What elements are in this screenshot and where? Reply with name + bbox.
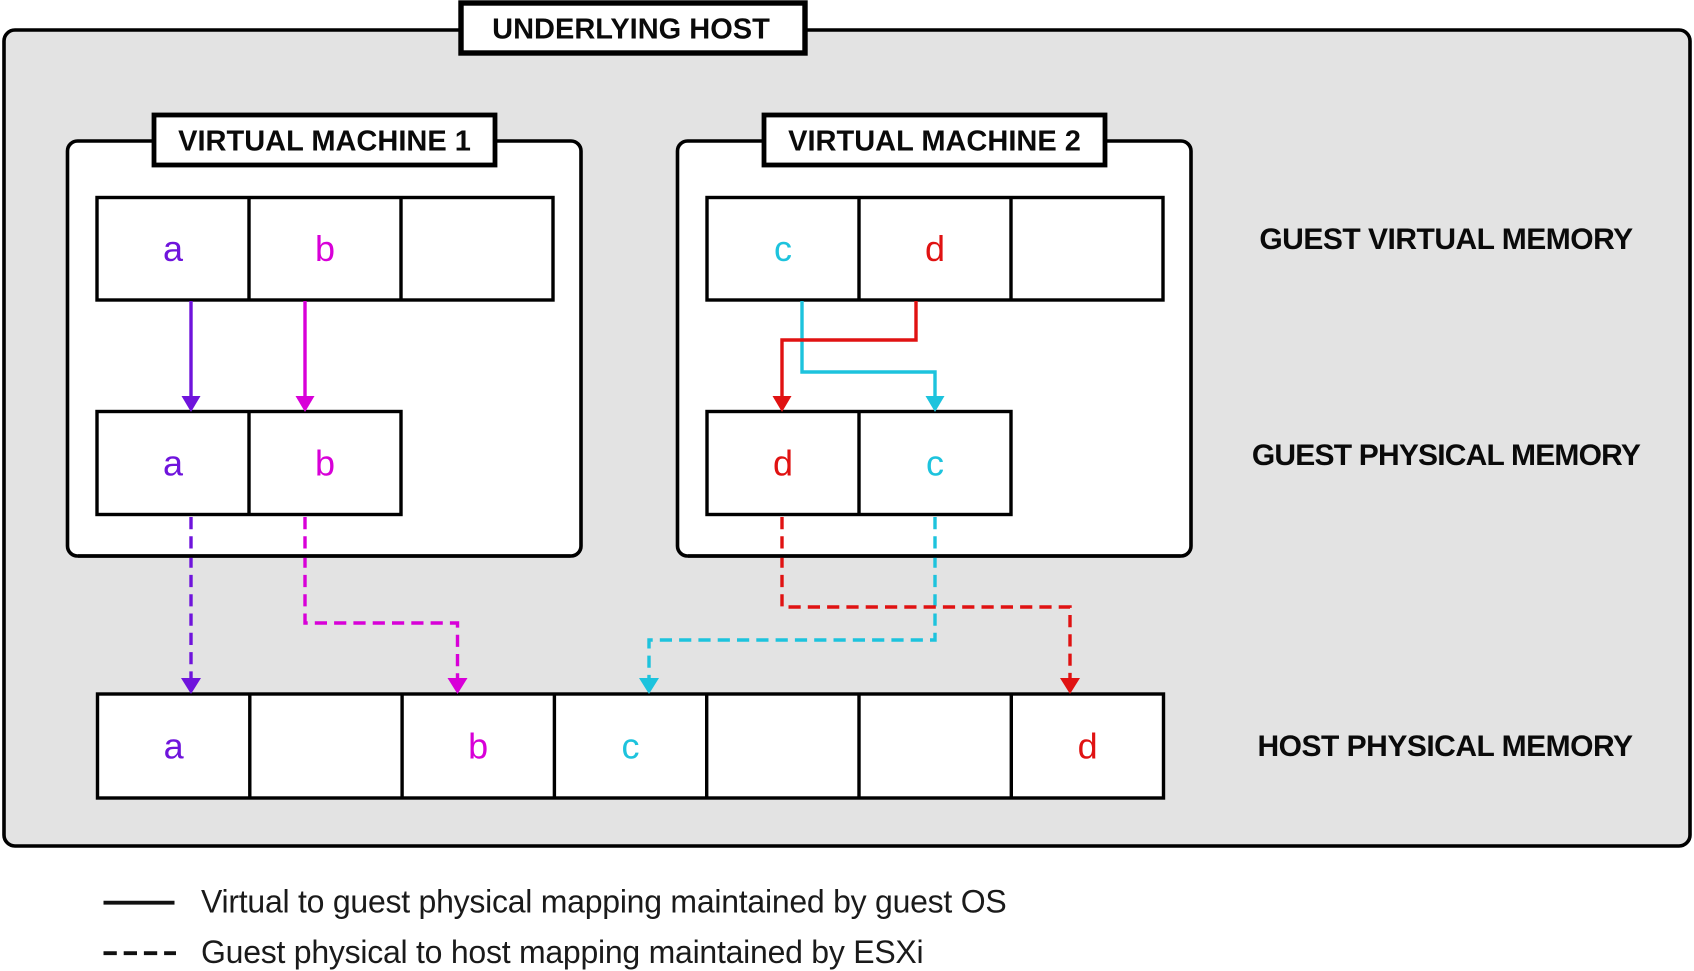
svg-text:d: d — [925, 228, 945, 269]
svg-text:a: a — [163, 228, 184, 269]
svg-text:Virtual to guest physical mapp: Virtual to guest physical mapping mainta… — [201, 884, 1006, 920]
svg-text:b: b — [315, 443, 335, 484]
svg-text:Guest physical to host mapping: Guest physical to host mapping maintaine… — [201, 934, 923, 970]
svg-text:VIRTUAL MACHINE 1: VIRTUAL MACHINE 1 — [178, 126, 471, 158]
svg-text:GUEST PHYSICAL MEMORY: GUEST PHYSICAL MEMORY — [1252, 439, 1641, 472]
svg-text:GUEST VIRTUAL MEMORY: GUEST VIRTUAL MEMORY — [1259, 223, 1633, 256]
svg-text:VIRTUAL MACHINE 2: VIRTUAL MACHINE 2 — [788, 126, 1081, 158]
svg-text:c: c — [622, 726, 640, 767]
svg-text:b: b — [315, 228, 335, 269]
svg-text:a: a — [164, 726, 185, 767]
svg-text:UNDERLYING HOST: UNDERLYING HOST — [492, 14, 770, 46]
svg-text:d: d — [1078, 726, 1098, 767]
svg-text:c: c — [926, 443, 944, 484]
svg-text:HOST PHYSICAL MEMORY: HOST PHYSICAL MEMORY — [1257, 730, 1633, 763]
svg-text:a: a — [163, 443, 184, 484]
svg-text:c: c — [774, 228, 792, 269]
svg-text:d: d — [773, 443, 793, 484]
svg-text:b: b — [468, 726, 488, 767]
